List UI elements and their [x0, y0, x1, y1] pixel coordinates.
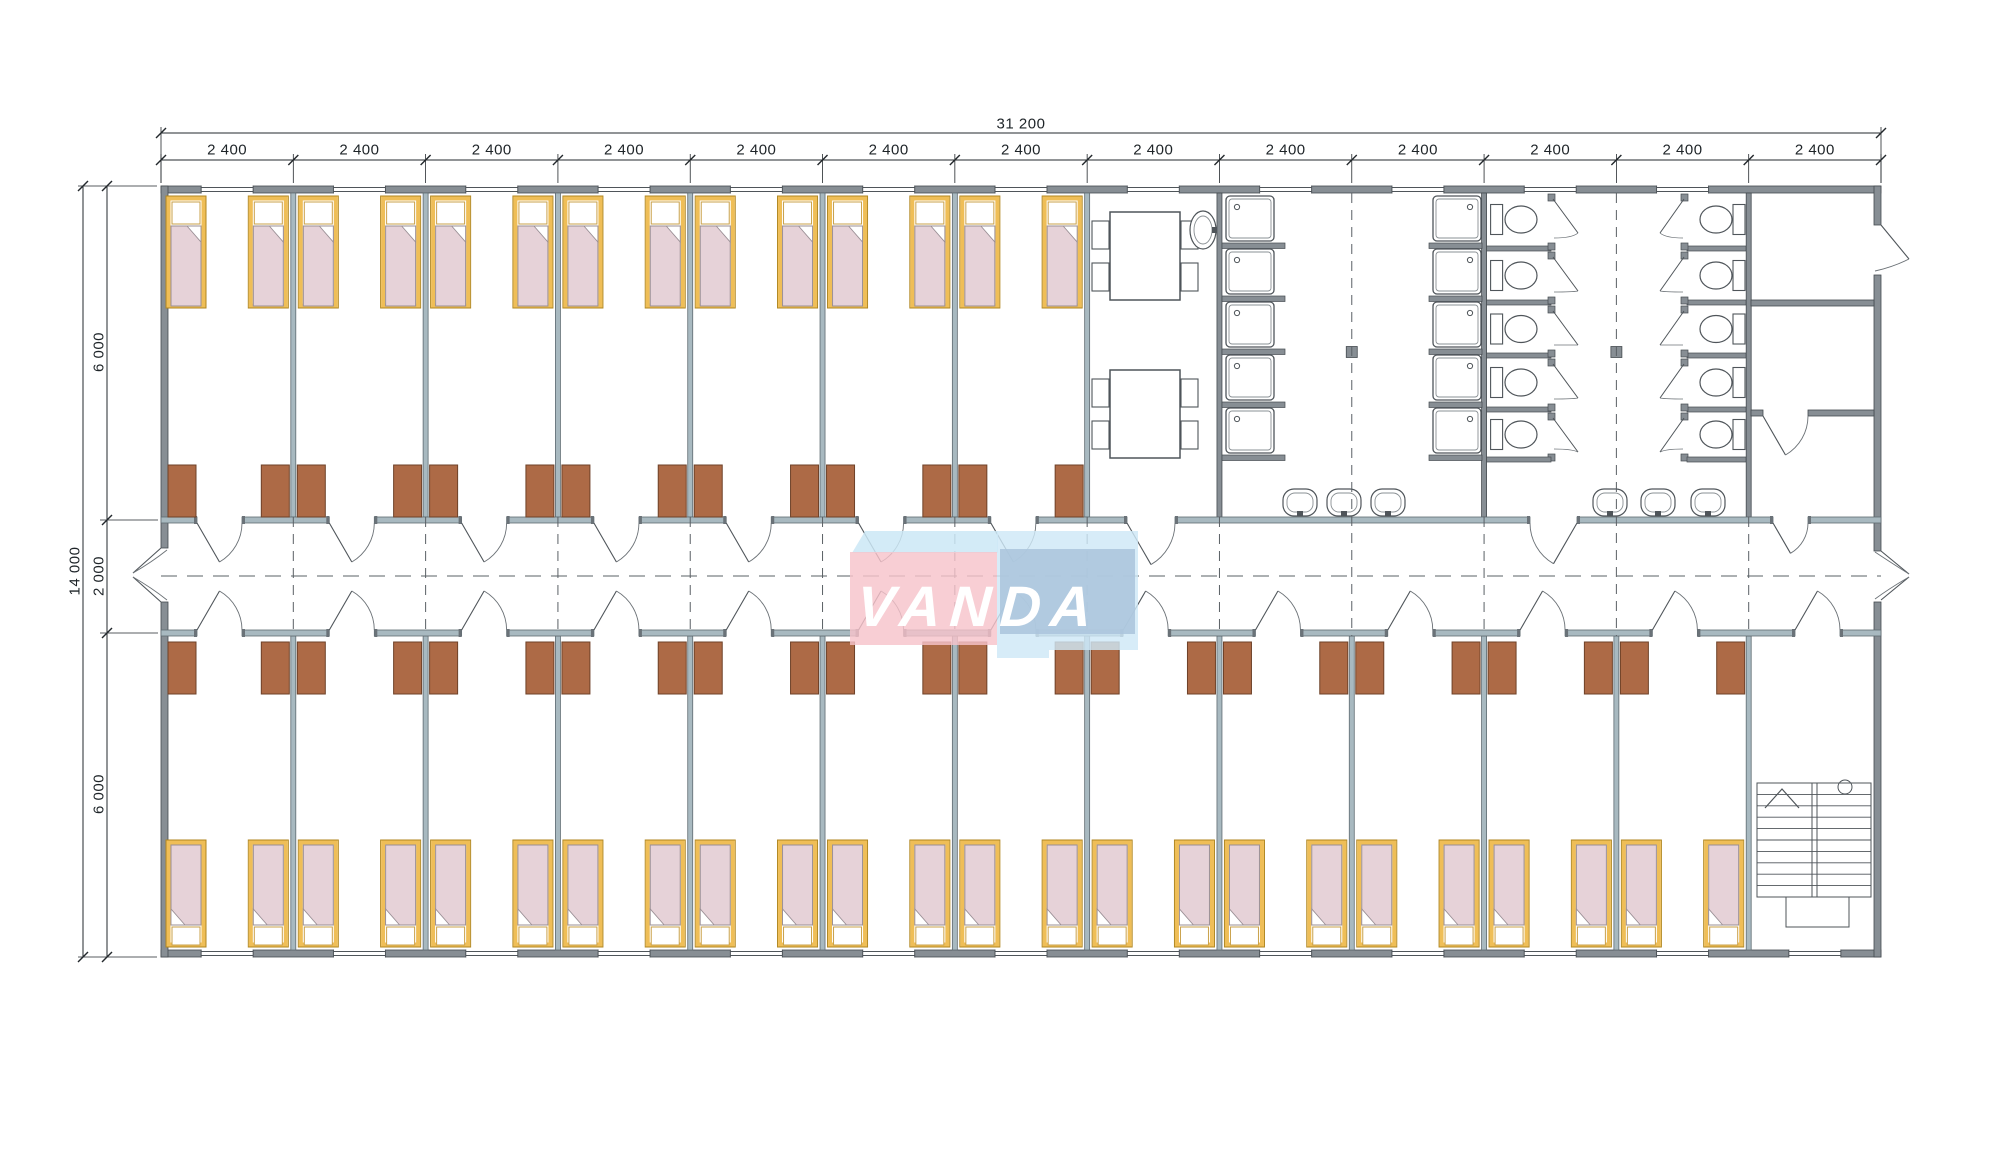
shower-tray-symbol: [1226, 355, 1274, 400]
door-leaf: [1795, 591, 1818, 630]
corridor-wall-segment: [374, 630, 461, 636]
wardrobe-symbol: [791, 465, 819, 517]
door-leaf: [197, 523, 220, 562]
stall-door-arc: [1554, 291, 1578, 292]
shower-tray-symbol: [1226, 302, 1274, 347]
door-leaf: [594, 523, 617, 562]
window-symbol: [201, 186, 253, 194]
window-symbol: [598, 950, 650, 958]
logo-tail-shape: [997, 650, 1049, 658]
stall-door-arc: [1660, 449, 1683, 452]
wash-basin-symbol: [1283, 489, 1317, 516]
stall-door-leaf: [1660, 418, 1684, 452]
stall-door-leaf: [1553, 311, 1578, 345]
door-leaf: [1763, 416, 1786, 455]
bed-symbol: [695, 196, 735, 308]
partition-wall: [291, 193, 296, 517]
bed-symbol: [381, 196, 421, 308]
door-swing-arc: [1151, 523, 1175, 565]
partition-wall: [1085, 636, 1090, 950]
bed-symbol: [960, 196, 1000, 308]
corridor-wall-segment: [242, 630, 329, 636]
bed-symbol: [1224, 840, 1264, 947]
stall-door-arc: [1554, 233, 1578, 238]
window-symbol: [863, 186, 915, 194]
bed-symbol: [1092, 840, 1132, 947]
wardrobe-symbol: [1320, 642, 1348, 694]
corridor-wall-segment: [771, 517, 858, 523]
bed-symbol: [1042, 196, 1082, 308]
wardrobe-symbol: [959, 465, 987, 517]
bed-symbol: [1571, 840, 1611, 947]
dim-top-segment-12: 2 400: [1795, 142, 1835, 159]
door-leaf: [1773, 523, 1791, 553]
window-symbol: [1127, 186, 1179, 194]
dim-top-segment-7: 2 400: [1133, 142, 1173, 159]
bed-symbol: [695, 840, 735, 947]
door-swing-arc: [484, 591, 507, 630]
partition-wall: [688, 193, 693, 517]
bed-symbol: [563, 840, 603, 947]
window-symbol: [1127, 950, 1179, 958]
stall-door-leaf: [1553, 257, 1578, 291]
corridor-wall-segment: [639, 630, 726, 636]
stall-door-arc: [1660, 233, 1683, 238]
wardrobe-symbol: [562, 642, 590, 694]
bed-symbol: [828, 196, 868, 308]
partition-wall: [1217, 193, 1222, 517]
corridor-wall-segment: [1036, 517, 1127, 523]
dim-left-segment-0: 6 000: [91, 332, 108, 372]
dim-top-segment-11: 2 400: [1663, 142, 1703, 159]
door-swing-arc: [133, 577, 167, 600]
wardrobe-symbol: [261, 465, 289, 517]
partition-wall: [1482, 193, 1487, 517]
toilet-symbol: [1700, 368, 1745, 398]
window-symbol: [1657, 186, 1709, 194]
door-leaf: [329, 523, 352, 562]
partition-wall: [1349, 636, 1354, 950]
corridor-wall-segment: [1565, 630, 1652, 636]
logo-flap-shape: [852, 531, 998, 553]
wardrobe-symbol: [526, 465, 554, 517]
corridor-wall-segment: [1433, 630, 1520, 636]
dim-top-segment-1: 2 400: [339, 142, 379, 159]
wardrobe-symbol: [394, 465, 422, 517]
door-leaf: [133, 577, 161, 602]
toilet-symbol: [1491, 205, 1537, 235]
stair-landing: [1786, 897, 1849, 927]
wardrobe-symbol: [1223, 642, 1251, 694]
bed-symbol: [248, 196, 288, 308]
wardrobe-symbol: [791, 642, 819, 694]
bed-symbol: [910, 196, 950, 308]
bed-symbol: [431, 196, 471, 308]
bed-symbol: [645, 840, 685, 947]
wardrobe-symbol: [1620, 642, 1648, 694]
dim-top-segment-9: 2 400: [1398, 142, 1438, 159]
dim-left-total: 14 000: [67, 547, 84, 596]
toilet-symbol: [1491, 368, 1537, 398]
partition-wall: [952, 636, 957, 950]
partition-wall: [1614, 636, 1619, 950]
dim-top-total: 31 200: [997, 116, 1046, 133]
door-swing-arc: [616, 591, 639, 630]
corridor-wall-segment: [242, 517, 329, 523]
bed-symbol: [431, 840, 471, 947]
bed-symbol: [828, 840, 868, 947]
shower-tray-symbol: [1433, 196, 1481, 241]
toilet-symbol: [1491, 261, 1537, 291]
toilet-symbol: [1700, 205, 1745, 235]
stall-door-leaf: [1660, 257, 1684, 291]
door-swing-arc: [1818, 591, 1841, 630]
door-swing-arc: [749, 523, 772, 562]
bed-symbol: [778, 196, 818, 308]
stall-door-leaf: [1553, 199, 1578, 233]
wardrobe-symbol: [1488, 642, 1516, 694]
wardrobe-symbol: [394, 642, 422, 694]
bed-symbol: [645, 196, 685, 308]
wardrobe-symbol: [959, 642, 987, 694]
partition-wall: [1746, 636, 1751, 950]
dim-top-segment-6: 2 400: [1001, 142, 1041, 159]
door-leaf: [1652, 591, 1675, 630]
wardrobe-symbol: [168, 642, 196, 694]
door-swing-arc: [749, 591, 772, 630]
door-leaf: [1554, 523, 1578, 564]
dim-top-segment-8: 2 400: [1266, 142, 1306, 159]
shower-tray-symbol: [1433, 355, 1481, 400]
door-swing-arc: [1278, 591, 1301, 630]
wardrobe-symbol: [827, 642, 855, 694]
dim-top-segment-5: 2 400: [869, 142, 909, 159]
door-leaf: [1255, 591, 1278, 630]
staircase: [1757, 780, 1871, 927]
wardrobe-symbol: [297, 465, 325, 517]
door-swing-arc: [616, 523, 639, 562]
door-swing-arc: [1675, 591, 1698, 630]
wash-basin-symbol: [1593, 489, 1627, 516]
window-symbol: [466, 186, 518, 194]
door-swing-arc: [133, 550, 167, 573]
door-swing-arc: [484, 523, 507, 562]
wardrobe-symbol: [1055, 465, 1083, 517]
window-symbol: [863, 950, 915, 958]
door-leaf: [329, 591, 352, 630]
stair-up-arrow: [1765, 789, 1799, 808]
partition-wall: [1085, 193, 1090, 517]
door-leaf: [1881, 551, 1909, 574]
wash-basin-symbol: [1371, 489, 1405, 516]
dining-area: [1092, 211, 1217, 458]
door-leaf: [594, 591, 617, 630]
bed-symbol: [1174, 840, 1214, 947]
wardrobe-symbol: [562, 465, 590, 517]
wash-basins: [1283, 489, 1725, 516]
wardrobe-symbol: [526, 642, 554, 694]
window-symbol: [333, 950, 385, 958]
door-swing-arc: [1875, 577, 1909, 599]
window-symbol: [730, 950, 782, 958]
window-symbol: [598, 186, 650, 194]
bed-symbol: [166, 196, 206, 308]
dim-top-segment-4: 2 400: [736, 142, 776, 159]
partition-wall: [1217, 636, 1222, 950]
partition-wall: [555, 193, 560, 517]
bed-symbol: [298, 840, 338, 947]
bed-symbol: [960, 840, 1000, 947]
bed-symbol: [298, 196, 338, 308]
corridor-wall-segment: [507, 630, 594, 636]
wardrobe-symbol: [261, 642, 289, 694]
corridor-wall-segment: [1168, 630, 1255, 636]
wardrobe-symbol: [1584, 642, 1612, 694]
bed-symbol: [1439, 840, 1479, 947]
door-leaf: [1388, 591, 1411, 630]
door-swing-arc: [1530, 523, 1554, 564]
wardrobe-symbol: [694, 465, 722, 517]
window-symbol: [730, 186, 782, 194]
partition-wall: [820, 193, 825, 517]
logo-text: VANDA: [855, 577, 1103, 637]
door-swing-arc: [1875, 259, 1909, 271]
wash-basin-symbol: [1327, 489, 1361, 516]
window-symbol: [1789, 950, 1841, 958]
dim-top-segment-10: 2 400: [1530, 142, 1570, 159]
partition-wall: [1482, 636, 1487, 950]
door-swing-arc: [1875, 552, 1909, 574]
corridor-wall-segment: [1697, 630, 1795, 636]
wardrobe-symbol: [297, 642, 325, 694]
floor-plan-canvas: VANDA 31 2002 4002 4002 4002 4002 4002 4…: [0, 0, 2000, 1164]
stall-door-arc: [1554, 449, 1578, 452]
bed-symbol: [1704, 840, 1744, 947]
bed-symbol: [1489, 840, 1529, 947]
wardrobe-symbol: [168, 465, 196, 517]
door-swing-arc: [1146, 591, 1169, 630]
window-symbol: [333, 186, 385, 194]
partition-wall: [952, 193, 957, 517]
bed-symbol: [513, 840, 553, 947]
toilet-symbol: [1491, 314, 1537, 344]
stall-door-leaf: [1553, 364, 1578, 398]
shower-tray-symbol: [1433, 249, 1481, 294]
toilet-symbol: [1700, 261, 1745, 291]
wardrobe-symbol: [430, 642, 458, 694]
partition-wall: [291, 636, 296, 950]
table-with-chairs-symbol: [1092, 370, 1198, 458]
bed-symbol: [248, 840, 288, 947]
bed-symbol: [166, 840, 206, 947]
door-swing-arc: [1543, 591, 1566, 630]
wardrobe-symbol: [658, 465, 686, 517]
door-leaf: [197, 591, 220, 630]
toilet-symbol: [1700, 420, 1745, 450]
partition-wall: [1746, 193, 1751, 517]
window-symbol: [466, 950, 518, 958]
shower-tray-symbol: [1433, 408, 1481, 453]
corridor-wall-segment: [639, 517, 726, 523]
dim-top-segment-2: 2 400: [472, 142, 512, 159]
door-swing-arc: [1410, 591, 1433, 630]
toilet-symbol: [1491, 420, 1537, 450]
bed-symbol: [910, 840, 950, 947]
door-swing-arc: [220, 591, 243, 630]
corridor-wall-segment: [1300, 630, 1387, 636]
door-swing-arc: [1786, 416, 1809, 455]
door-leaf: [726, 523, 749, 562]
shower-tray-symbol: [1226, 408, 1274, 453]
partition-wall: [820, 636, 825, 950]
bed-symbol: [381, 840, 421, 947]
wardrobe-symbol: [694, 642, 722, 694]
stall-door-arc: [1660, 291, 1683, 292]
corridor-wall-segment: [771, 630, 858, 636]
window-symbol: [995, 186, 1047, 194]
wardrobe-symbol: [1452, 642, 1480, 694]
corridor-wall-segment: [1808, 517, 1881, 523]
window-symbol: [1524, 950, 1576, 958]
corridor-wall-segment: [1175, 517, 1530, 523]
stall-door-leaf: [1660, 364, 1684, 398]
corridor-wall-segment: [904, 517, 991, 523]
wardrobe-symbol: [1717, 642, 1745, 694]
wardrobe-symbol: [1187, 642, 1215, 694]
window-symbol: [995, 950, 1047, 958]
shower-tray-symbol: [1433, 302, 1481, 347]
corridor-wall-segment: [374, 517, 461, 523]
wardrobe-symbol: [1356, 642, 1384, 694]
door-leaf: [1881, 225, 1909, 259]
stall-door-leaf: [1660, 311, 1684, 345]
stall-door-leaf: [1553, 418, 1578, 452]
partition-wall: [688, 636, 693, 950]
dim-top-segment-3: 2 400: [604, 142, 644, 159]
door-swing-arc: [352, 591, 375, 630]
window-symbol: [1524, 186, 1576, 194]
window-symbol: [201, 950, 253, 958]
door-swing-arc: [352, 523, 375, 562]
wash-basin-symbol: [1691, 489, 1725, 516]
bed-symbol: [513, 196, 553, 308]
wardrobe-symbol: [430, 465, 458, 517]
stall-door-leaf: [1660, 199, 1684, 233]
bay13-walls: [1751, 300, 1874, 416]
door-leaf: [462, 591, 485, 630]
wardrobe-symbol: [658, 642, 686, 694]
corridor-wall-segment: [1577, 517, 1773, 523]
table-with-chairs-symbol: [1092, 212, 1198, 300]
stall-door-arc: [1660, 398, 1683, 399]
partition-wall: [423, 193, 428, 517]
dim-left-segment-2: 6 000: [91, 774, 108, 814]
bed-symbol: [1042, 840, 1082, 947]
corridor-wall-segment: [161, 630, 197, 636]
door-leaf: [462, 523, 485, 562]
corridor-wall-segment: [161, 517, 197, 523]
door-leaf: [133, 548, 161, 573]
bed-symbol: [1357, 840, 1397, 947]
bed-symbol: [778, 840, 818, 947]
partition-wall: [555, 636, 560, 950]
door-leaf: [1520, 591, 1543, 630]
door-swing-arc: [1791, 523, 1809, 553]
corridor-wall-segment: [1840, 630, 1881, 636]
partition-wall: [423, 636, 428, 950]
window-symbol: [1657, 950, 1709, 958]
bed-symbol: [563, 196, 603, 308]
stall-door-arc: [1554, 398, 1578, 399]
window-symbol: [1260, 950, 1312, 958]
wash-basin-symbol: [1190, 211, 1217, 249]
bed-symbol: [1307, 840, 1347, 947]
dim-left-segment-1: 2 000: [91, 556, 108, 596]
wardrobe-symbol: [827, 465, 855, 517]
corridor-wall-segment: [507, 517, 594, 523]
wardrobe-symbol: [923, 465, 951, 517]
door-leaf: [1881, 577, 1909, 600]
dim-top-segment-0: 2 400: [207, 142, 247, 159]
door-swing-arc: [220, 523, 243, 562]
shower-tray-symbol: [1226, 196, 1274, 241]
wash-basin-symbol: [1641, 489, 1675, 516]
shower-tray-symbol: [1226, 249, 1274, 294]
bed-symbol: [1621, 840, 1661, 947]
window-symbol: [1392, 186, 1444, 194]
window-symbol: [1392, 950, 1444, 958]
window-symbol: [1260, 186, 1312, 194]
wardrobe-symbol: [923, 642, 951, 694]
door-leaf: [726, 591, 749, 630]
toilet-symbol: [1700, 314, 1745, 344]
